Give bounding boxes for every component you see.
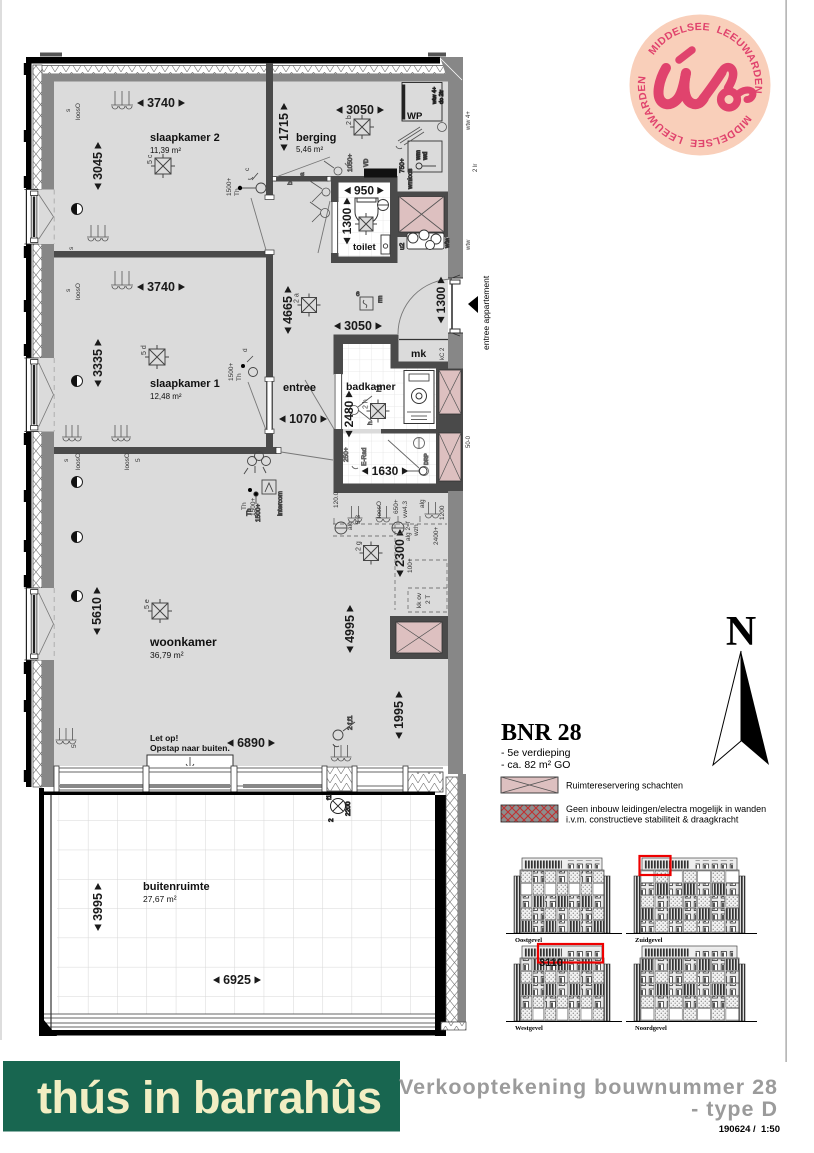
svg-text:5: 5 — [71, 744, 78, 748]
svg-text:3050: 3050 — [344, 319, 372, 333]
svg-text:loosO: loosO — [75, 103, 82, 120]
svg-text:5 e: 5 e — [144, 599, 151, 609]
svg-text:1050+: 1050+ — [347, 154, 354, 172]
svg-text:rm: rm — [377, 295, 384, 303]
svg-text:alg: alg — [347, 521, 354, 530]
svg-text:Noordgevel: Noordgevel — [635, 1025, 667, 1032]
svg-text:wd: wd — [423, 151, 429, 161]
svg-text:5 3: 5 3 — [355, 515, 362, 524]
svg-text:b: b — [287, 181, 294, 185]
svg-text:3110: 3110 — [539, 957, 563, 969]
svg-text:2 b: 2 b — [346, 115, 353, 125]
svg-text:- type D: - type D — [691, 1097, 778, 1121]
svg-text:BNR 28: BNR 28 — [501, 720, 582, 746]
svg-text:Ruimtereservering schachten: Ruimtereservering schachten — [566, 781, 683, 791]
svg-text:Westgevel: Westgevel — [515, 1025, 543, 1032]
svg-text:2: 2 — [328, 818, 335, 822]
svg-text:a: a — [299, 172, 306, 176]
svg-text:entree: entree — [283, 382, 316, 394]
svg-text:E-Rad: E-Rad — [361, 447, 368, 466]
svg-text:DRP: DRP — [424, 453, 430, 465]
svg-text:6890: 6890 — [237, 736, 265, 750]
svg-text:entree appartement: entree appartement — [481, 275, 491, 350]
svg-text:loosO: loosO — [124, 453, 131, 470]
svg-text:1200: 1200 — [439, 505, 446, 520]
svg-text:wtw: wtw — [445, 237, 451, 249]
svg-text:- ca. 82 m² GO: - ca. 82 m² GO — [501, 759, 570, 771]
svg-text:slaapkamer 1: slaapkamer 1 — [150, 378, 220, 390]
svg-text:1500+: 1500+ — [250, 498, 257, 516]
svg-text:alg: alg — [419, 499, 426, 508]
svg-text:woonkamer: woonkamer — [149, 635, 217, 649]
svg-text:loosO: loosO — [376, 501, 383, 518]
svg-text:Verkooptekening bouwnummer 28: Verkooptekening bouwnummer 28 — [399, 1075, 778, 1099]
svg-text:250+: 250+ — [343, 447, 350, 462]
svg-text:2480: 2480 — [342, 400, 356, 427]
svg-text:2 g: 2 g — [356, 541, 363, 551]
svg-text:intercom: intercom — [277, 491, 284, 516]
svg-text:11,39 m²: 11,39 m² — [150, 146, 181, 155]
svg-text:2200: 2200 — [345, 801, 352, 816]
svg-text:Zuidgevel: Zuidgevel — [635, 937, 663, 944]
svg-text:3335: 3335 — [91, 349, 105, 377]
svg-text:4665: 4665 — [281, 296, 295, 324]
svg-text:650+: 650+ — [393, 499, 400, 514]
svg-text:wzh: wzh — [413, 524, 420, 537]
svg-text:mk: mk — [411, 348, 426, 360]
svg-text:100+: 100+ — [407, 558, 414, 573]
svg-text:berging: berging — [296, 132, 336, 144]
svg-text:i.v.m. constructieve stabilite: i.v.m. constructieve stabiliteit & draag… — [566, 815, 739, 825]
svg-text:50-0: 50-0 — [466, 435, 472, 448]
svg-text:d: d — [242, 348, 249, 352]
svg-text:wmloos: wmloos — [408, 169, 414, 190]
svg-text:120.0: 120.0 — [333, 491, 340, 508]
svg-text:5610: 5610 — [90, 597, 104, 625]
svg-text:wtw: wtw — [466, 239, 472, 251]
svg-text:Th: Th — [241, 502, 248, 510]
svg-text:toilet: toilet — [353, 242, 377, 253]
svg-text:5 c: 5 c — [147, 154, 154, 164]
svg-text:wtw 4+: wtw 4+ — [432, 87, 438, 105]
svg-text:1630: 1630 — [372, 464, 399, 478]
svg-text:6: 6 — [356, 291, 360, 298]
svg-text:1995: 1995 — [392, 701, 406, 729]
svg-text:thús in barrahûs: thús in barrahûs — [37, 1072, 382, 1123]
svg-text:2 f,f1: 2 f,f1 — [347, 715, 354, 730]
svg-text:N: N — [726, 609, 756, 655]
svg-text:kk ov: kk ov — [416, 592, 423, 608]
svg-text:12,48 m²: 12,48 m² — [150, 392, 182, 401]
svg-text:950: 950 — [354, 184, 374, 198]
svg-text:loosO: loosO — [75, 453, 82, 470]
svg-text:2 lr: 2 lr — [473, 164, 479, 172]
svg-text:do 2tr: do 2tr — [439, 90, 445, 104]
svg-text:f1: f1 — [326, 794, 333, 800]
svg-text:5,46 m²: 5,46 m² — [296, 145, 323, 154]
svg-text:2 h: 2 h — [363, 399, 370, 409]
svg-text:vw4.3: vw4.3 — [402, 501, 409, 518]
svg-text:1500+: 1500+ — [226, 178, 233, 196]
svg-text:wm: wm — [416, 150, 422, 161]
svg-text:1070: 1070 — [289, 412, 317, 426]
svg-text:loosO: loosO — [75, 283, 82, 300]
svg-text:27,67 m²: 27,67 m² — [143, 894, 177, 904]
svg-text:u2: u2 — [399, 242, 406, 250]
svg-text:1715: 1715 — [277, 113, 291, 141]
svg-text:190624 / 1:50: 190624 / 1:50 — [719, 1124, 780, 1135]
svg-text:3050: 3050 — [346, 103, 374, 117]
svg-text:4995: 4995 — [343, 615, 357, 643]
svg-text:3995: 3995 — [91, 893, 105, 921]
svg-text:Let op!: Let op! — [150, 733, 178, 743]
svg-text:36,79 m²: 36,79 m² — [150, 650, 184, 660]
svg-text:badkamer: badkamer — [346, 381, 396, 393]
svg-text:2 T: 2 T — [425, 595, 432, 604]
svg-text:wtw 4+: wtw 4+ — [466, 111, 472, 131]
svg-text:1300: 1300 — [340, 207, 354, 234]
svg-text:1500+: 1500+ — [228, 363, 235, 381]
svg-text:- 5e verdieping: - 5e verdieping — [501, 747, 571, 759]
svg-text:5: 5 — [135, 458, 142, 462]
svg-text:3045: 3045 — [91, 152, 105, 180]
svg-text:Opstap naar buiten.: Opstap naar buiten. — [150, 743, 230, 753]
svg-text:alg 2=f: alg 2=f — [405, 521, 412, 541]
svg-text:kC 2: kC 2 — [440, 347, 446, 360]
svg-text:5 d: 5 d — [141, 345, 148, 355]
svg-text:VD: VD — [364, 158, 370, 167]
svg-text:1300: 1300 — [434, 286, 448, 313]
svg-text:WP: WP — [407, 111, 423, 122]
svg-text:slaapkamer 2: slaapkamer 2 — [150, 132, 220, 144]
svg-text:750+: 750+ — [399, 158, 406, 173]
svg-text:h: h — [367, 421, 374, 425]
svg-text:3740: 3740 — [147, 280, 175, 294]
svg-text:Th: Th — [236, 373, 243, 381]
svg-text:6925: 6925 — [223, 973, 251, 987]
svg-text:2400+: 2400+ — [433, 527, 440, 545]
svg-text:Geen inbouw leidingen/electra: Geen inbouw leidingen/electra mogelijk i… — [566, 804, 766, 814]
svg-text:3740: 3740 — [147, 96, 175, 110]
svg-text:buitenruimte: buitenruimte — [143, 881, 210, 893]
